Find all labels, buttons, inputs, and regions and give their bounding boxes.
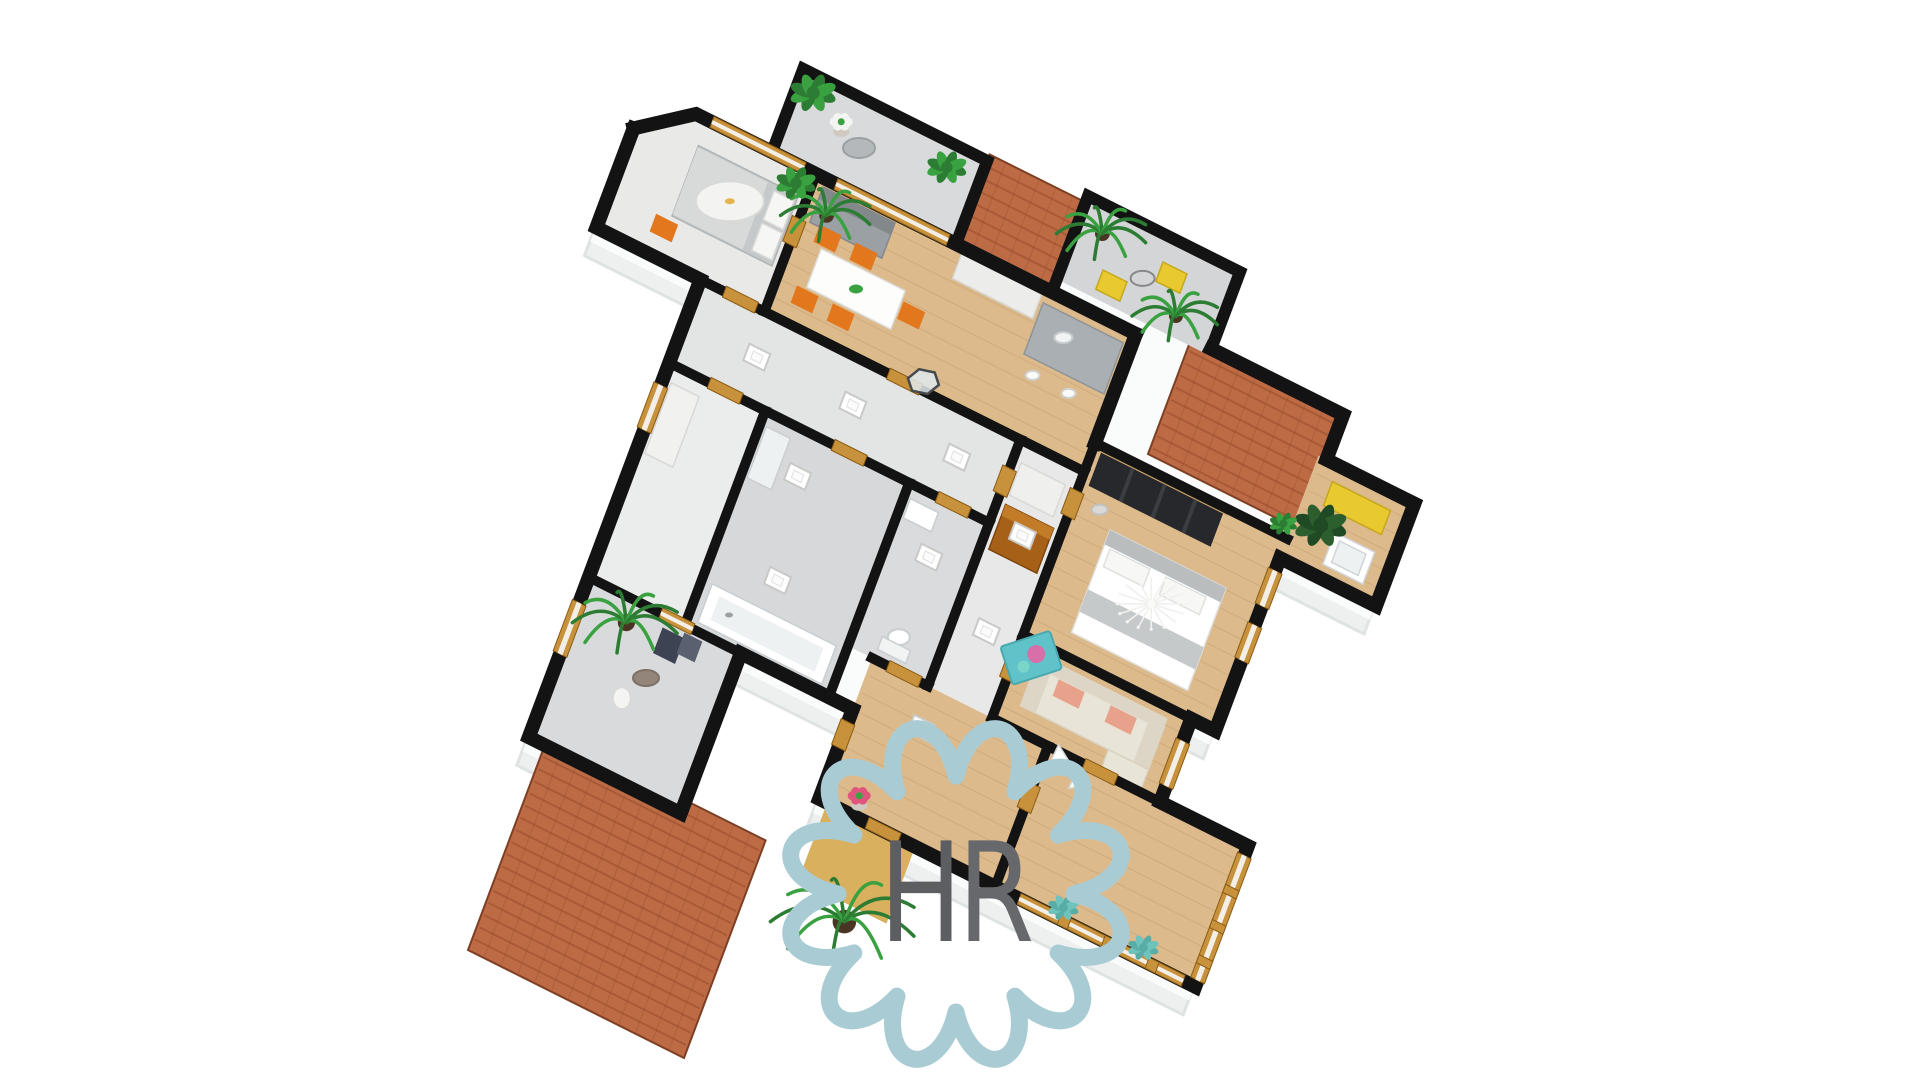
dandelion-tip [1126, 620, 1129, 623]
dandelion-tip [1163, 579, 1166, 582]
bush-core [1139, 943, 1148, 952]
logo-text: H R [879, 814, 1034, 974]
dandelion-tip [1118, 612, 1121, 615]
sink [1054, 332, 1072, 343]
dandelion-tip [1181, 612, 1184, 615]
bush-core [1313, 518, 1328, 533]
dandelion-decor [1116, 577, 1187, 631]
centerpiece [849, 285, 863, 294]
dandelion-tip [1116, 602, 1119, 605]
dandelion-tip [1137, 579, 1140, 582]
vase-white [613, 687, 631, 709]
nightstand [1092, 505, 1108, 515]
bush-core [807, 86, 820, 99]
dandelion-tip [1163, 626, 1166, 629]
bar-stool [1026, 371, 1040, 380]
balcony-table [843, 138, 875, 158]
dandelion-tip [1184, 602, 1187, 605]
dandelion-tip [1137, 626, 1140, 629]
flower-leaves [856, 792, 863, 799]
dandelion-tip [1150, 577, 1153, 580]
flower-leaves [838, 118, 845, 125]
dandelion-tip [1174, 620, 1177, 623]
dandelion-core [1147, 600, 1155, 608]
dandelion-tip [1118, 592, 1121, 595]
tub-faucet [725, 613, 733, 618]
bush-core [790, 177, 801, 188]
logo-letter-r: R [958, 814, 1035, 974]
dandelion-tip [1181, 592, 1184, 595]
bar-stool [1062, 389, 1076, 398]
dandelion-tip [1174, 584, 1177, 587]
floorplan-canvas: H R [0, 0, 1920, 1080]
bush-core [941, 162, 952, 173]
logo-letter-h: H [879, 814, 962, 974]
dandelion-tip [1126, 584, 1129, 587]
bush-core [1059, 903, 1068, 912]
terrace-table [633, 670, 659, 686]
bush-core [1279, 520, 1287, 528]
dandelion-tip [1150, 628, 1153, 631]
lamp-bulb [725, 198, 735, 204]
hr-logo-watermark: H R [791, 729, 1122, 1060]
